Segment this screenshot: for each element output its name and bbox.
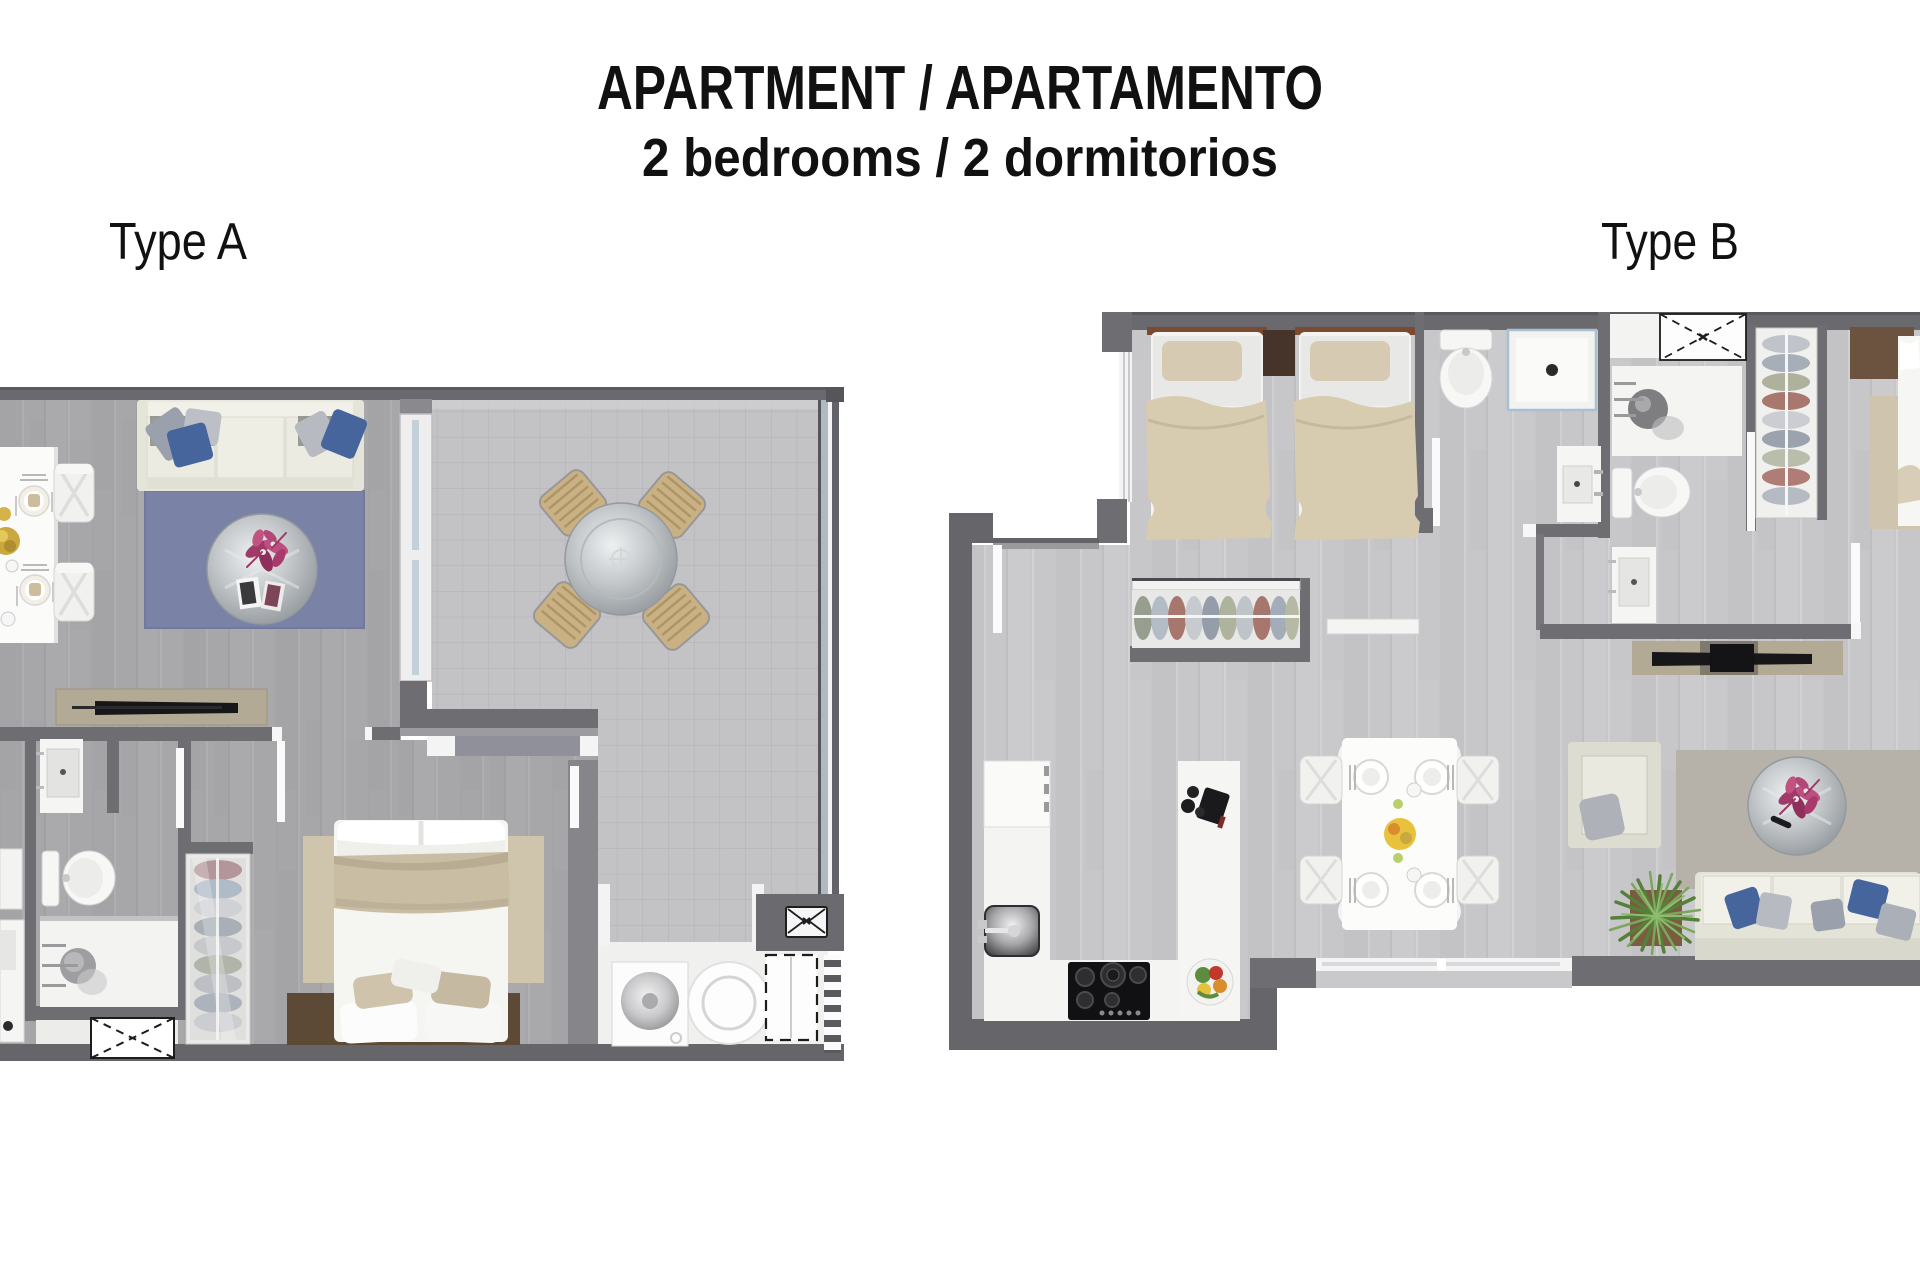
svg-text:Type B: Type B <box>1601 213 1739 271</box>
svg-text:2 bedrooms / 2 dormitorios: 2 bedrooms / 2 dormitorios <box>642 128 1278 188</box>
svg-text:APARTMENT / APARTAMENTO: APARTMENT / APARTAMENTO <box>597 54 1323 123</box>
svg-text:Type A: Type A <box>109 213 247 271</box>
